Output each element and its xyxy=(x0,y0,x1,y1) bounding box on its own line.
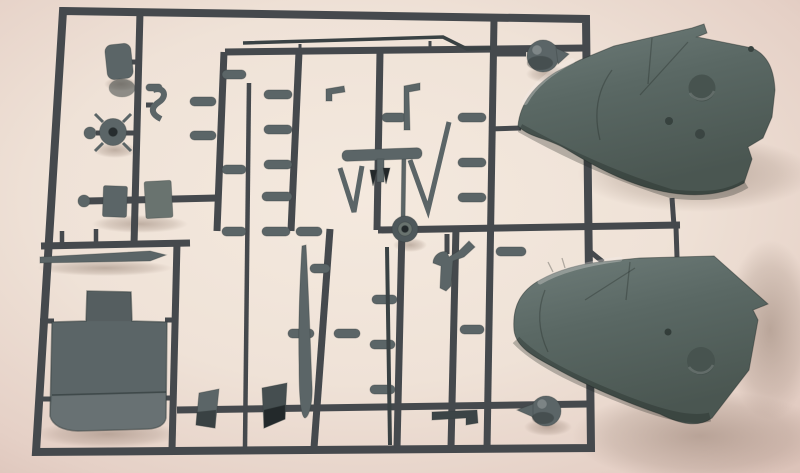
runner-v2 xyxy=(172,243,177,450)
block-part-2 xyxy=(144,180,173,218)
bomb-part xyxy=(264,125,292,134)
pointed-rod-part xyxy=(401,150,406,222)
bomb-part xyxy=(264,160,292,169)
bomb-part xyxy=(372,295,397,304)
bomb-part xyxy=(296,227,322,236)
bomb-part xyxy=(264,90,292,99)
bomb-part xyxy=(190,97,216,106)
runner-v5 xyxy=(397,228,402,448)
bomb-part xyxy=(262,227,290,236)
seat-shadow-lobe xyxy=(109,79,135,97)
runner-f xyxy=(377,52,380,230)
bomb-part xyxy=(310,264,330,273)
bomb-part xyxy=(458,158,486,167)
bomb-part xyxy=(190,131,216,140)
bomb-part xyxy=(496,247,526,256)
bomb-part xyxy=(458,113,486,122)
bomb-part xyxy=(222,165,246,174)
bomb-part xyxy=(370,340,395,349)
ball-knob xyxy=(84,127,96,139)
runner-mid-bar xyxy=(378,225,680,230)
main-wheel-part xyxy=(392,216,418,242)
seat-part xyxy=(104,43,134,81)
photo-of-model-sprue xyxy=(0,0,800,473)
ball-knob xyxy=(78,195,90,207)
bomb-part xyxy=(370,385,395,394)
block-part-1 xyxy=(102,186,127,218)
bomb-part xyxy=(382,113,406,122)
parallelogram-part xyxy=(196,389,219,428)
bomb-part xyxy=(458,193,486,202)
bomb-part xyxy=(460,325,484,334)
bomb-part xyxy=(262,192,292,201)
bomb-part xyxy=(222,70,246,79)
bomb-part xyxy=(222,227,246,236)
bomb-part xyxy=(334,329,360,338)
